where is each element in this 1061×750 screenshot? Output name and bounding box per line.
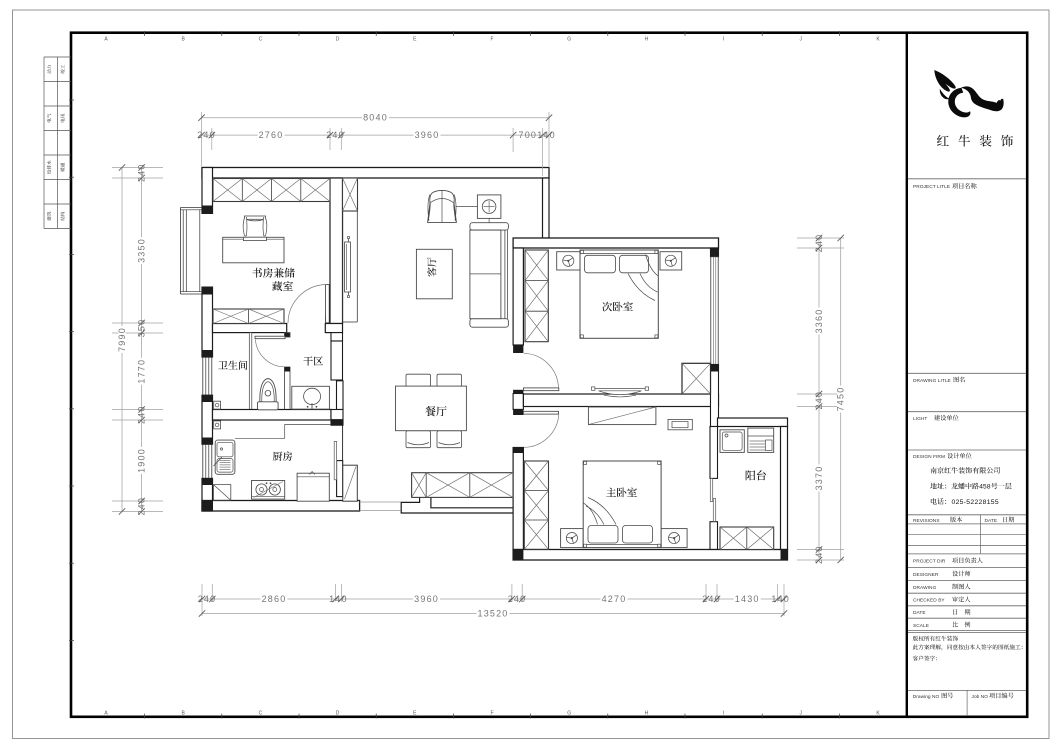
svg-text:240: 240 <box>137 405 147 424</box>
svg-text:H: H <box>645 37 649 43</box>
svg-text:DESIGN FIRM: DESIGN FIRM <box>913 454 945 460</box>
svg-text:PROJECT DIR: PROJECT DIR <box>913 559 946 565</box>
svg-text:240: 240 <box>508 594 527 604</box>
svg-text:F: F <box>490 37 493 43</box>
svg-text:C: C <box>259 711 263 717</box>
svg-text:E: E <box>413 37 417 43</box>
svg-text:1770: 1770 <box>137 359 147 384</box>
svg-text:Job NO: Job NO <box>972 694 989 700</box>
svg-text:025-52228155: 025-52228155 <box>952 499 999 506</box>
svg-text:DATE: DATE <box>985 518 998 524</box>
svg-text:DATE: DATE <box>913 610 926 616</box>
svg-text:240: 240 <box>702 594 721 604</box>
svg-text:LIGHT: LIGHT <box>913 416 927 422</box>
svg-text:I: I <box>723 711 724 717</box>
svg-text:240: 240 <box>137 163 147 182</box>
svg-text:3370: 3370 <box>814 466 824 491</box>
svg-text:PROJECT LITLE: PROJECT LITLE <box>913 184 950 190</box>
svg-text:8040: 8040 <box>363 113 388 123</box>
svg-text:DRAWING LITLE: DRAWING LITLE <box>913 378 951 384</box>
svg-text:G: G <box>567 37 571 43</box>
svg-text:140: 140 <box>329 594 348 604</box>
svg-text:350: 350 <box>137 319 147 338</box>
svg-text:DESIGNER: DESIGNER <box>913 572 939 578</box>
svg-text:G: G <box>567 711 571 717</box>
svg-text:700: 700 <box>518 130 537 140</box>
svg-text:J: J <box>800 37 803 43</box>
svg-text:1900: 1900 <box>137 448 147 473</box>
svg-text:Drawing NO: Drawing NO <box>913 694 940 700</box>
svg-text:F: F <box>490 711 493 717</box>
svg-text:A: A <box>104 37 108 43</box>
svg-text:458: 458 <box>979 484 991 491</box>
svg-text:D: D <box>336 711 340 717</box>
svg-text:7450: 7450 <box>836 387 846 412</box>
svg-text:REVISIONS: REVISIONS <box>913 518 940 524</box>
svg-text:240: 240 <box>814 234 824 253</box>
svg-text:240: 240 <box>197 130 216 140</box>
svg-text:7990: 7990 <box>117 327 127 352</box>
svg-text:4270: 4270 <box>602 594 627 604</box>
svg-text:3960: 3960 <box>414 594 439 604</box>
svg-text:SCALE: SCALE <box>913 623 929 629</box>
svg-text:240: 240 <box>814 545 824 564</box>
svg-text:3360: 3360 <box>814 309 824 334</box>
svg-text:D: D <box>336 37 340 43</box>
svg-text:240: 240 <box>198 594 217 604</box>
svg-text:2860: 2860 <box>262 594 287 604</box>
svg-text:3350: 3350 <box>137 238 147 263</box>
svg-text:K: K <box>876 37 880 43</box>
svg-text:DRAWING: DRAWING <box>913 585 937 591</box>
svg-text:240: 240 <box>137 497 147 516</box>
svg-text:140: 140 <box>537 130 556 140</box>
svg-text:B: B <box>182 37 186 43</box>
svg-text:H: H <box>645 711 649 717</box>
svg-text:C: C <box>259 37 263 43</box>
svg-text:I: I <box>723 37 724 43</box>
svg-text:2760: 2760 <box>259 130 284 140</box>
svg-text:3960: 3960 <box>415 130 440 140</box>
svg-text:140: 140 <box>771 594 790 604</box>
svg-text:13520: 13520 <box>477 608 508 618</box>
svg-text:CHECKED BY: CHECKED BY <box>913 598 945 604</box>
svg-text:1430: 1430 <box>735 594 760 604</box>
